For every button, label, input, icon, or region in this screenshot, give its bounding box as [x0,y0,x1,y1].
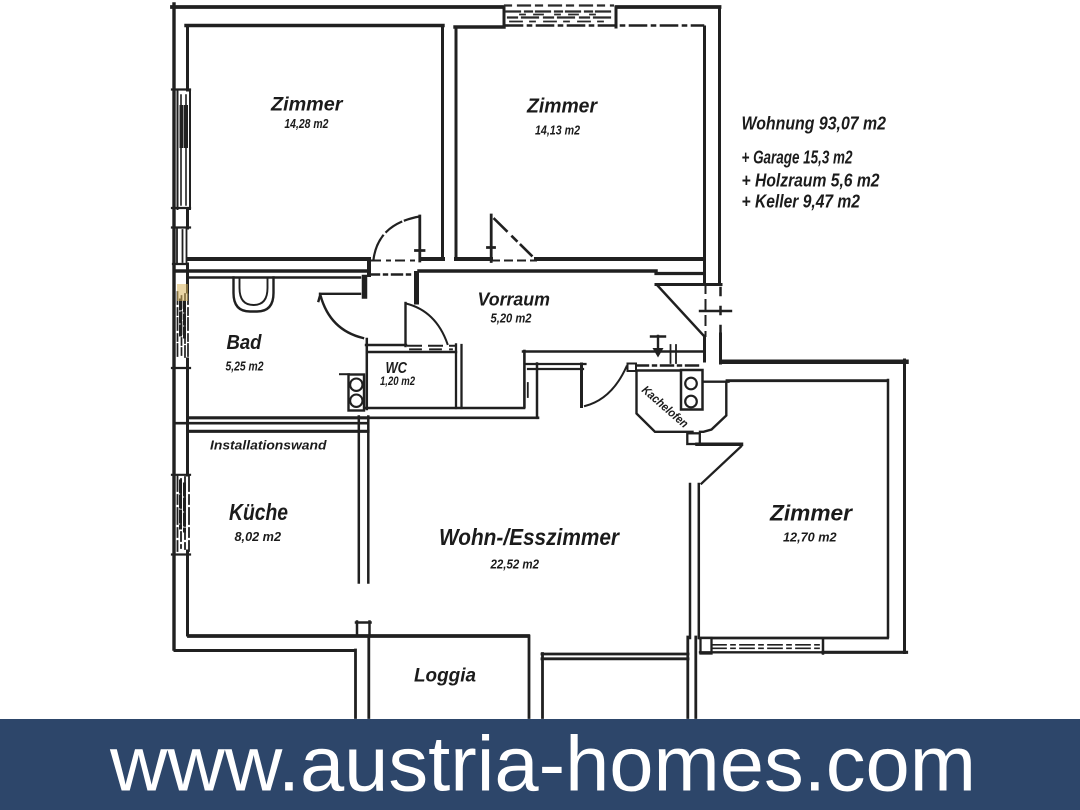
svg-text:+ Holzraum 5,6 m2: + Holzraum 5,6 m2 [742,170,881,191]
svg-text:12,70 m2: 12,70 m2 [783,531,837,545]
svg-text:Wohn-/Esszimmer: Wohn-/Esszimmer [439,524,620,550]
svg-text:Installationswand: Installationswand [210,438,328,453]
svg-text:Zimmer: Zimmer [769,501,853,526]
svg-text:Wohnung 93,07 m2: Wohnung 93,07 m2 [742,113,887,134]
svg-text:Küche: Küche [229,499,288,525]
svg-text:Loggia: Loggia [414,666,476,687]
svg-text:Bad: Bad [227,331,262,354]
svg-text:Zimmer: Zimmer [270,93,344,115]
svg-text:1,20 m2: 1,20 m2 [380,376,415,388]
svg-text:8,02 m2: 8,02 m2 [235,530,282,544]
svg-text:+ Keller 9,47 m2: + Keller 9,47 m2 [742,191,861,212]
svg-text:22,52 m2: 22,52 m2 [490,557,540,572]
svg-text:WC: WC [386,360,408,377]
svg-text:www.austria-homes.com: www.austria-homes.com [109,720,976,808]
svg-text:5,20 m2: 5,20 m2 [491,312,532,326]
svg-text:14,13 m2: 14,13 m2 [535,124,580,138]
svg-text:Vorraum: Vorraum [478,290,551,310]
svg-text:14,28 m2: 14,28 m2 [284,116,329,131]
svg-text:Zimmer: Zimmer [526,96,598,118]
svg-text:+ Garage 15,3 m2: + Garage 15,3 m2 [742,147,854,168]
svg-text:5,25 m2: 5,25 m2 [226,360,264,374]
